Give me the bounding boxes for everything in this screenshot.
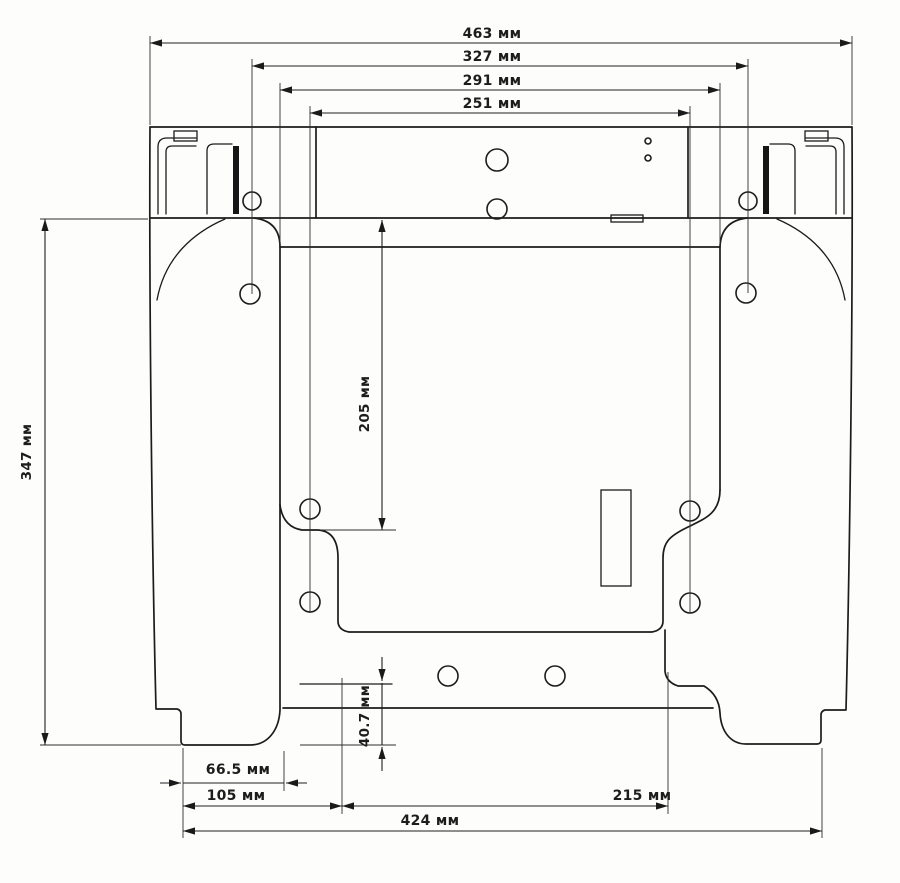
- dim-label-205: 205 мм: [357, 376, 373, 433]
- slot-opening: [601, 490, 631, 586]
- dim-66-5mm: 66.5 мм: [160, 762, 307, 783]
- hole-pin-lower: [645, 155, 651, 161]
- dim-label-327: 327 мм: [463, 49, 522, 65]
- dim-205mm: 205 мм: [320, 220, 396, 530]
- dim-105mm: 105 мм: [183, 788, 342, 806]
- technical-drawing: 463 мм 327 мм 291 мм 251 мм 347 мм 205 м…: [0, 0, 900, 883]
- hole-flange-left: [438, 666, 458, 686]
- hole-flange-right: [545, 666, 565, 686]
- dim-347mm: 347 мм: [19, 219, 181, 745]
- hole-plate-top: [486, 149, 508, 171]
- part-body: [150, 127, 852, 745]
- dim-215mm: 215 мм: [342, 788, 671, 806]
- dim-label-463: 463 мм: [463, 26, 522, 42]
- dim-label-215: 215 мм: [613, 788, 672, 804]
- dim-label-251: 251 мм: [463, 96, 522, 112]
- drawing-sheet: 463 мм 327 мм 291 мм 251 мм 347 мм 205 м…: [0, 0, 900, 883]
- rail-clamp-left: [158, 131, 239, 214]
- dim-40-7mm: 40.7 мм: [300, 657, 396, 771]
- dim-label-424: 424 мм: [401, 813, 460, 829]
- dim-label-66-5: 66.5 мм: [206, 762, 270, 778]
- dim-label-105: 105 мм: [207, 788, 266, 804]
- hole-left-second: [240, 284, 260, 304]
- mounting-holes: [240, 138, 757, 686]
- dim-label-347: 347 мм: [19, 424, 35, 481]
- dim-251mm: 251 мм: [310, 96, 690, 613]
- dim-424mm: 424 мм: [183, 813, 822, 831]
- hole-plate-bottom: [487, 199, 507, 219]
- dim-label-291: 291 мм: [463, 73, 522, 89]
- hole-right-second: [736, 283, 756, 303]
- rail-clamp-right: [763, 131, 844, 214]
- hole-pin-upper: [645, 138, 651, 144]
- dim-label-40-7: 40.7 мм: [357, 685, 373, 747]
- bottom-extension-lines: [183, 672, 822, 838]
